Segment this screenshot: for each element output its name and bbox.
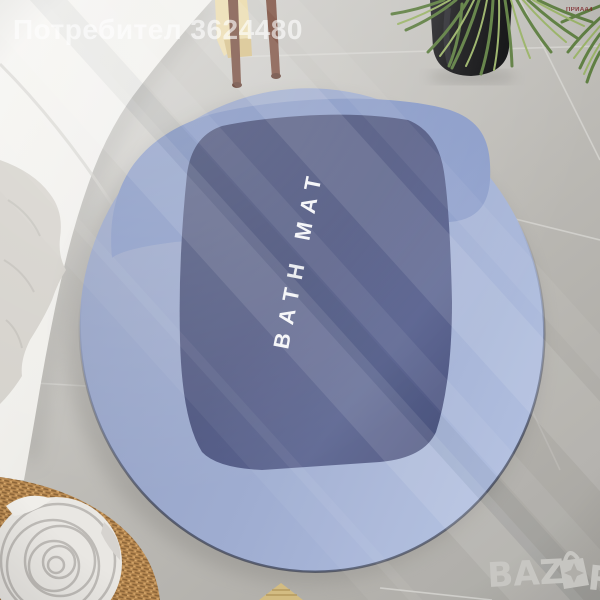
- product-photo: BATH MAT Потребител 3624480 ПРИАА4 BAZ: [0, 0, 600, 600]
- corner-code-watermark: ПРИАА4: [566, 7, 593, 13]
- scene: BATH MAT Потребител 3624480 ПРИАА4 BAZ: [0, 0, 600, 600]
- bazar-logo-text-1: BAZ: [486, 552, 565, 596]
- vignette: [0, 0, 600, 600]
- user-watermark: Потребител 3624480: [13, 14, 303, 45]
